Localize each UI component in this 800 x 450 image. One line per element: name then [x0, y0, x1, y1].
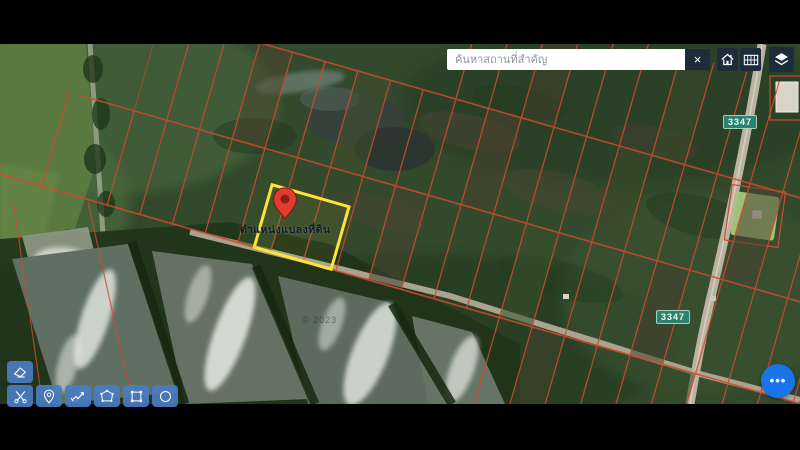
satellite-map	[0, 44, 800, 404]
cut-tool-button[interactable]	[7, 385, 33, 407]
road-badge-3347: 3347	[723, 115, 757, 129]
layers-button[interactable]	[769, 47, 794, 72]
rectangle-icon	[129, 389, 144, 404]
draw-rectangle-tool-button[interactable]	[123, 385, 149, 407]
more-actions-fab[interactable]: •••	[761, 364, 795, 398]
grid-icon	[743, 53, 759, 67]
layers-icon	[773, 51, 790, 68]
home-button[interactable]	[717, 48, 738, 71]
search-clear-button[interactable]: ×	[685, 49, 710, 70]
search-input[interactable]	[447, 49, 685, 70]
drop-marker-tool-button[interactable]	[36, 385, 62, 407]
eraser-button[interactable]	[7, 361, 33, 383]
draw-polygon-tool-button[interactable]	[94, 385, 120, 407]
location-marker-icon[interactable]	[272, 186, 298, 220]
close-icon: ×	[694, 52, 702, 67]
ellipsis-icon: •••	[770, 373, 787, 388]
scissors-icon	[13, 389, 28, 404]
polygon-icon	[99, 389, 115, 404]
parcel-marker-label: ตำแหน่งแปลงที่ดิน	[240, 221, 331, 238]
draw-circle-tool-button[interactable]	[152, 385, 178, 407]
app-window: ตำแหน่งแปลงที่ดิน 3347 3347 © 2023 ×	[0, 0, 800, 450]
basemap-grid-button[interactable]	[740, 48, 761, 71]
circle-icon	[158, 389, 173, 404]
map-watermark: © 2023	[302, 315, 337, 325]
measure-polyline-icon	[70, 389, 86, 403]
eraser-icon	[12, 365, 28, 379]
map-viewport[interactable]	[0, 44, 800, 404]
measure-line-tool-button[interactable]	[65, 385, 91, 407]
home-icon	[720, 52, 735, 67]
draw-toolbar	[7, 385, 178, 407]
pin-tool-icon	[42, 389, 56, 404]
road-badge-3347: 3347	[656, 310, 690, 324]
